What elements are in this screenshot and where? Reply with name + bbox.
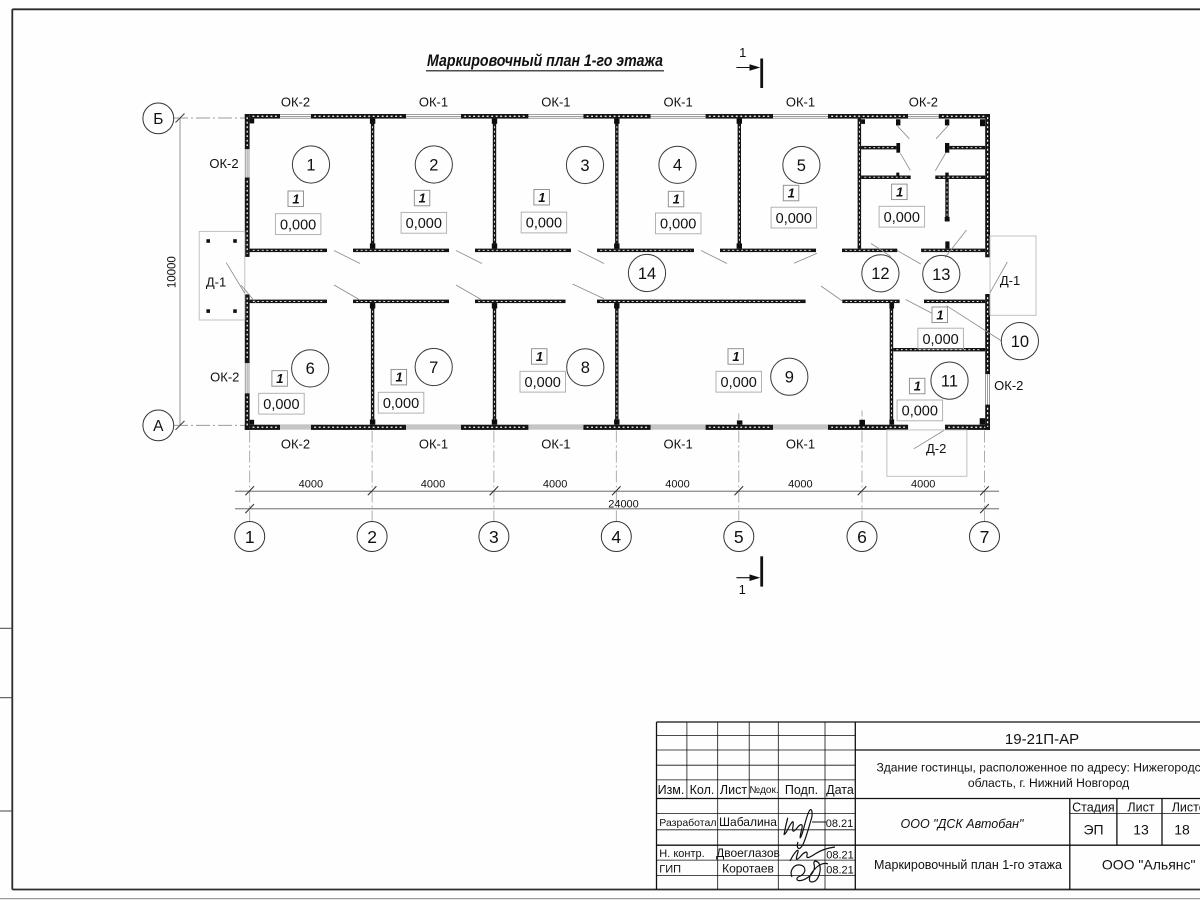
svg-text:ОК-2: ОК-2	[209, 156, 238, 171]
svg-text:5: 5	[797, 157, 806, 175]
svg-text:ОК-1: ОК-1	[419, 94, 448, 109]
svg-text:Д-1: Д-1	[206, 275, 226, 290]
svg-text:24000: 24000	[608, 498, 639, 510]
svg-text:7: 7	[980, 527, 990, 547]
svg-text:1: 1	[936, 307, 943, 322]
svg-text:ОК-1: ОК-1	[419, 436, 448, 451]
svg-text:Маркировочный план 1-го этажа: Маркировочный план 1-го этажа	[427, 52, 663, 70]
svg-text:5: 5	[734, 527, 744, 547]
svg-text:19-21П-АР: 19-21П-АР	[1005, 731, 1079, 748]
svg-text:11: 11	[941, 372, 958, 390]
svg-text:12: 12	[871, 265, 889, 283]
svg-text:0,000: 0,000	[263, 397, 299, 413]
svg-text:0,000: 0,000	[383, 396, 419, 412]
svg-text:Двоеглазов: Двоеглазов	[716, 846, 780, 860]
svg-text:ОК-2: ОК-2	[909, 94, 938, 109]
svg-text:ОК-2: ОК-2	[281, 94, 310, 109]
svg-text:Подп.: Подп.	[785, 783, 818, 797]
svg-text:1: 1	[914, 379, 921, 394]
svg-text:2: 2	[367, 527, 377, 547]
svg-text:18: 18	[1174, 822, 1190, 838]
svg-text:Разработал: Разработал	[659, 817, 716, 829]
svg-text:Коротаев: Коротаев	[722, 861, 774, 875]
svg-text:4000: 4000	[665, 478, 689, 490]
svg-text:1: 1	[292, 191, 299, 206]
svg-text:0,000: 0,000	[884, 210, 920, 226]
svg-text:0,000: 0,000	[406, 216, 442, 232]
svg-text:ООО "Альянс": ООО "Альянс"	[1102, 856, 1196, 872]
svg-text:08.21: 08.21	[826, 849, 854, 861]
svg-text:4000: 4000	[421, 478, 445, 490]
svg-text:Шабалина: Шабалина	[719, 815, 777, 829]
svg-text:ЭП: ЭП	[1083, 822, 1103, 838]
svg-text:3: 3	[489, 527, 499, 547]
svg-text:1: 1	[788, 186, 795, 201]
svg-text:4000: 4000	[543, 478, 567, 490]
svg-text:13: 13	[1133, 822, 1149, 838]
svg-text:Изм.: Изм.	[658, 783, 685, 797]
svg-text:Лист: Лист	[720, 783, 747, 797]
svg-text:1: 1	[245, 527, 255, 547]
svg-text:4000: 4000	[911, 478, 935, 490]
svg-text:1: 1	[739, 45, 746, 60]
svg-text:0,000: 0,000	[280, 217, 316, 233]
svg-text:Б: Б	[153, 111, 163, 128]
svg-text:08.21: 08.21	[826, 818, 854, 830]
svg-text:Д-1: Д-1	[1000, 273, 1020, 288]
svg-text:Стадия: Стадия	[1072, 800, 1115, 814]
svg-text:Листов: Листов	[1172, 800, 1200, 814]
svg-text:ОК-2: ОК-2	[210, 370, 239, 385]
svg-text:ОК-1: ОК-1	[786, 94, 815, 109]
svg-text:ОК-1: ОК-1	[541, 436, 570, 451]
svg-text:Кол.: Кол.	[690, 783, 715, 797]
svg-text:Дата: Дата	[826, 783, 854, 797]
svg-text:0,000: 0,000	[776, 211, 812, 227]
svg-text:Н. контр.: Н. контр.	[659, 848, 704, 860]
svg-text:ГИП: ГИП	[659, 863, 681, 875]
svg-text:08.21: 08.21	[826, 865, 854, 877]
svg-text:10000: 10000	[167, 256, 179, 288]
svg-text:10: 10	[1011, 333, 1029, 351]
svg-text:ОК-2: ОК-2	[281, 436, 310, 451]
svg-text:0,000: 0,000	[721, 375, 757, 391]
svg-text:4: 4	[611, 527, 621, 547]
svg-text:1: 1	[739, 582, 746, 597]
svg-text:14: 14	[638, 265, 656, 283]
svg-text:А: А	[153, 418, 164, 435]
svg-text:1: 1	[395, 370, 402, 385]
svg-text:0,000: 0,000	[526, 216, 562, 232]
svg-text:1: 1	[276, 371, 283, 386]
svg-text:1: 1	[419, 191, 426, 206]
svg-text:№док.: №док.	[749, 785, 778, 796]
svg-text:1: 1	[732, 349, 739, 364]
svg-text:2: 2	[429, 156, 438, 174]
svg-text:1: 1	[896, 184, 903, 199]
svg-text:8: 8	[581, 359, 590, 377]
svg-text:13: 13	[932, 266, 950, 284]
svg-text:1: 1	[538, 190, 545, 205]
svg-text:Лист: Лист	[1127, 800, 1154, 814]
svg-text:1: 1	[536, 349, 543, 364]
svg-text:1: 1	[673, 192, 680, 207]
svg-text:6: 6	[306, 360, 315, 378]
svg-text:ОК-1: ОК-1	[663, 94, 692, 109]
svg-text:ОК-1: ОК-1	[663, 436, 692, 451]
svg-text:Д-2: Д-2	[926, 441, 946, 456]
svg-text:область, г. Нижний Новгород: область, г. Нижний Новгород	[968, 776, 1129, 790]
svg-text:9: 9	[785, 369, 794, 387]
svg-text:ОК-1: ОК-1	[541, 94, 570, 109]
svg-text:4000: 4000	[299, 478, 323, 490]
svg-text:4: 4	[673, 157, 682, 175]
svg-text:1: 1	[306, 156, 315, 174]
svg-text:ОК-1: ОК-1	[786, 436, 815, 451]
svg-text:Маркировочный план 1-го этажа: Маркировочный план 1-го этажа	[874, 858, 1062, 872]
svg-text:ООО "ДСК Автобан": ООО "ДСК Автобан"	[901, 817, 1025, 831]
svg-text:4000: 4000	[788, 478, 812, 490]
svg-text:6: 6	[857, 527, 867, 547]
svg-text:3: 3	[580, 157, 589, 175]
svg-text:0,000: 0,000	[922, 332, 958, 348]
svg-text:7: 7	[429, 359, 438, 377]
svg-text:0,000: 0,000	[902, 404, 938, 420]
svg-text:0,000: 0,000	[525, 375, 561, 391]
svg-text:Здание гостинцы, расположенное: Здание гостинцы, расположенное по адресу…	[876, 761, 1200, 775]
svg-text:0,000: 0,000	[660, 217, 696, 233]
svg-text:ОК-2: ОК-2	[994, 378, 1023, 393]
